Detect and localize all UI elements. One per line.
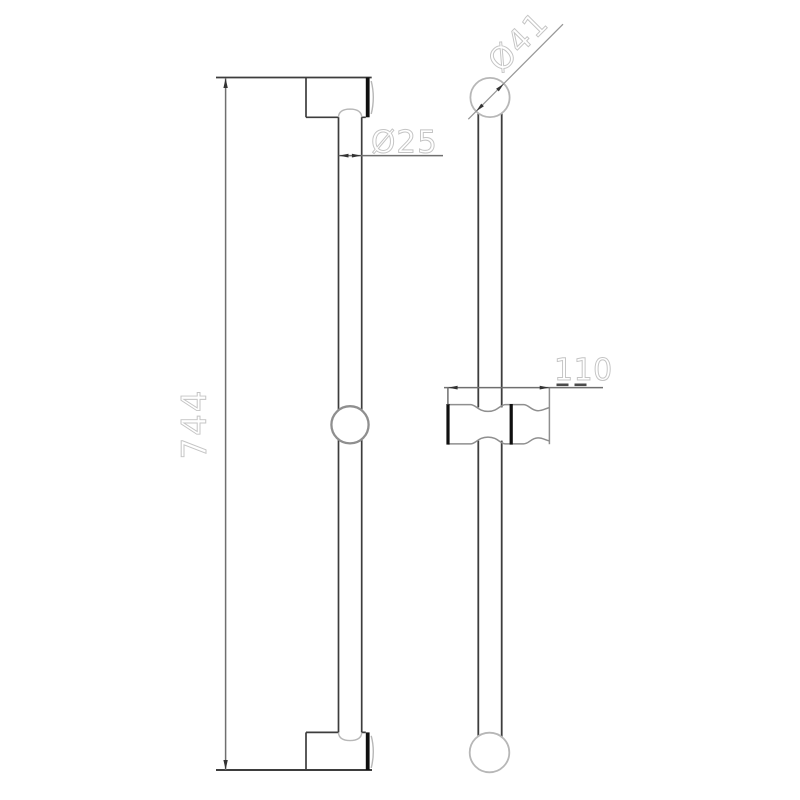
arrow-110-left: [448, 386, 458, 390]
front-view: [216, 78, 373, 771]
bottom-end-knob-circle: [470, 733, 510, 773]
top-fillet-arc: [339, 109, 362, 117]
arrow-744-bottom: [223, 760, 227, 770]
slider-knob-circle: [331, 406, 368, 443]
dimension-arrows: [223, 78, 549, 770]
dim-label-110: 110: [554, 353, 613, 388]
dim-label-744: 744: [175, 389, 215, 460]
holder-middle-bold-edge: [510, 404, 513, 445]
dimension-lines: [226, 78, 603, 770]
arrow-110-right: [540, 386, 550, 390]
technical-drawing-canvas: 744 Ø25 Ø41 110: [0, 0, 800, 800]
arrow-dia25-right: [352, 154, 362, 158]
holder-left-bold-edge: [446, 404, 449, 445]
dimension-annotations: 744 Ø25 Ø41 110: [175, 5, 613, 770]
holder-bold-edges: [446, 404, 512, 445]
bottom-bracket-bold-edge: [366, 732, 370, 770]
bottom-fillet-arc: [339, 733, 362, 741]
handset-holder: [446, 388, 549, 445]
bottom-bracket-side-arc: [371, 736, 373, 768]
top-bracket-side-arc: [371, 81, 373, 114]
holder-contours: [448, 388, 550, 445]
holder-top-contour: [448, 405, 550, 412]
top-bracket-bold-edge: [366, 78, 370, 118]
holder-bottom-contour: [448, 437, 550, 444]
dim-label-dia25: Ø25: [371, 125, 438, 161]
arrow-dia25-left: [339, 154, 349, 158]
shower-rail-drawing: 744 Ø25 Ø41 110: [0, 0, 800, 800]
side-bar-lines: [478, 105, 501, 745]
arrow-744-top: [223, 78, 227, 88]
side-view: [446, 78, 549, 772]
dimension-labels: 744 Ø25 Ø41 110: [175, 5, 613, 460]
